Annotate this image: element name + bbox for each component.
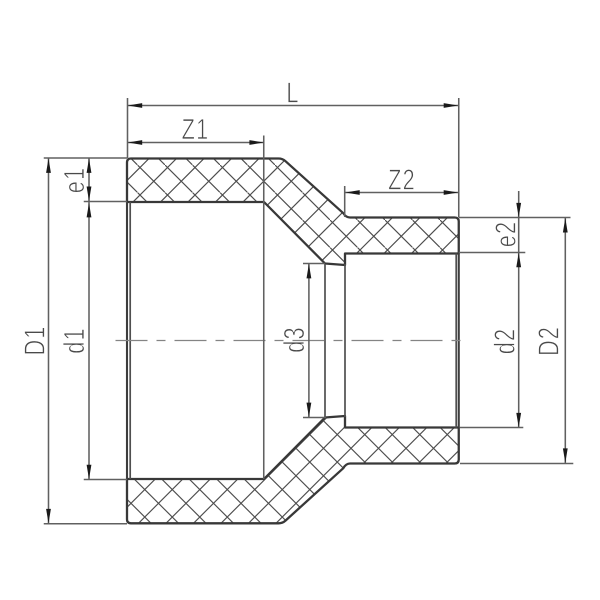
svg-text:Z1: Z1 [182,114,210,146]
svg-text:D2: D2 [534,326,566,356]
svg-text:D1: D1 [20,325,52,355]
svg-text:d3: d3 [279,326,311,352]
svg-text:e1: e1 [59,167,91,193]
svg-text:Z2: Z2 [388,165,416,197]
svg-text:d2: d2 [490,328,522,354]
svg-text:L: L [286,78,299,110]
svg-text:e2: e2 [491,221,523,247]
svg-text:d1: d1 [59,327,91,353]
